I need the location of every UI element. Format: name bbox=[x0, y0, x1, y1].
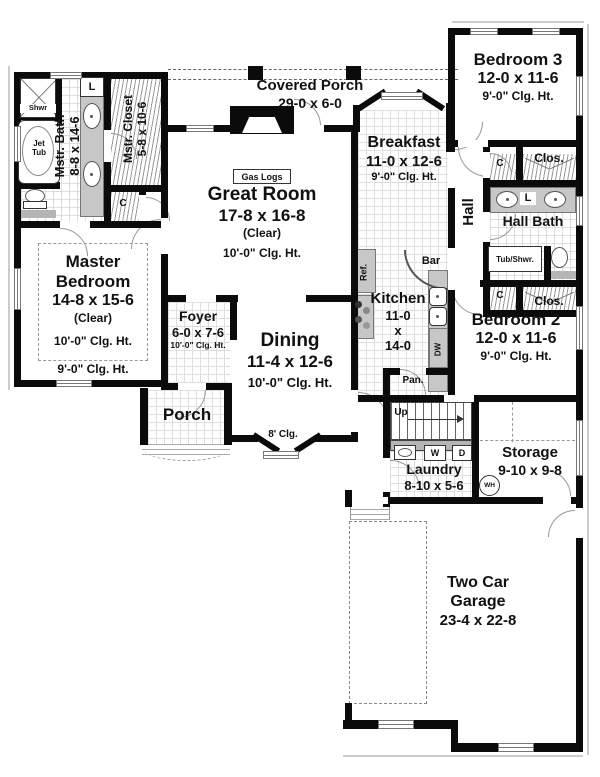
covered-porch-label: Covered Porch 29-0 x 6-0 bbox=[230, 77, 390, 111]
door-opening bbox=[444, 395, 474, 402]
room-dims: 11-0 x 12-6 bbox=[358, 153, 450, 171]
range-burner bbox=[355, 316, 362, 323]
wall-segment bbox=[448, 28, 583, 35]
dishwasher-label: DW bbox=[434, 335, 445, 365]
wall-segment bbox=[351, 125, 358, 302]
laundry-sink-basin bbox=[398, 448, 412, 457]
window bbox=[186, 125, 214, 132]
hall-bath-label: Hall Bath bbox=[490, 213, 576, 230]
window bbox=[14, 268, 21, 310]
wall-segment bbox=[544, 246, 551, 280]
great-room-label: Great Room 17-8 x 16-8 (Clear) 10'-0" Cl… bbox=[193, 184, 331, 260]
door-opening bbox=[60, 221, 90, 228]
tub-shower: Tub/Shwr. bbox=[488, 246, 542, 272]
window bbox=[576, 196, 583, 226]
foyer-label: Foyer 6-0 x 7-6 10'-0" Clg. Ht. bbox=[166, 308, 230, 350]
room-clg: 10'-0" Clg. Ht. bbox=[238, 375, 342, 390]
bedroom2-label: Bedroom 2 12-0 x 11-6 9'-0" Clg. Ht. bbox=[460, 310, 572, 363]
refrigerator-label: Ref. bbox=[359, 253, 372, 293]
wall-segment bbox=[388, 368, 400, 375]
room-name: Two Car Garage bbox=[418, 574, 538, 612]
wall-segment bbox=[140, 388, 148, 445]
washer: W bbox=[424, 445, 446, 461]
wall-segment bbox=[426, 368, 448, 375]
storage-label: Storage 9-10 x 9-8 bbox=[486, 444, 574, 478]
door-opening bbox=[178, 383, 206, 390]
room-name: Master Bedroom bbox=[40, 252, 146, 292]
window bbox=[576, 420, 583, 476]
sink-drain bbox=[436, 315, 439, 318]
room-dims: 12-0 x 11-6 bbox=[460, 330, 572, 349]
room-clg: 9'-0" Clg. Ht. bbox=[460, 349, 572, 363]
closet-label: Clos. bbox=[524, 151, 574, 165]
room-note: (Clear) bbox=[40, 311, 146, 325]
door-opening bbox=[294, 125, 324, 132]
breakfast-label: Breakfast 11-0 x 12-6 9'-0" Clg. Ht. bbox=[358, 134, 450, 184]
window bbox=[56, 380, 92, 387]
wall-segment bbox=[516, 147, 523, 180]
hall-label: Hall bbox=[460, 182, 476, 242]
closet-label: Clos. bbox=[524, 294, 574, 308]
room-name: Storage bbox=[486, 444, 574, 462]
wall-segment bbox=[230, 295, 237, 340]
jet-tub-label: Jet Tub bbox=[18, 139, 60, 158]
window bbox=[470, 28, 498, 35]
sink-drain bbox=[554, 198, 557, 201]
sink-drain bbox=[436, 295, 439, 298]
room-dims: 23-4 x 22-8 bbox=[418, 612, 538, 630]
laundry-label: Laundry 8-10 x 5-6 bbox=[394, 461, 474, 493]
garage-slab-line bbox=[349, 521, 427, 704]
room-name: Kitchen bbox=[366, 290, 430, 308]
wall-segment bbox=[168, 295, 186, 302]
room-dim-w: 11-0 bbox=[366, 308, 430, 323]
bar-label: Bar bbox=[414, 255, 448, 268]
room-dims: 9-10 x 9-8 bbox=[486, 462, 574, 479]
dining-label: Dining 11-4 x 12-6 10'-0" Clg. Ht. bbox=[238, 330, 342, 391]
pantry-label: Pan. bbox=[390, 375, 436, 387]
door-opening bbox=[452, 280, 480, 287]
c-closet-label: C bbox=[492, 158, 508, 170]
up-label: Up bbox=[391, 407, 411, 419]
eave-line-bottom bbox=[343, 755, 583, 757]
dryer: D bbox=[452, 445, 472, 461]
c-closet-label: C bbox=[115, 198, 131, 210]
room-dims: 8-10 x 5-6 bbox=[394, 478, 474, 493]
door-opening bbox=[483, 212, 490, 242]
sink-drain bbox=[506, 198, 509, 201]
room-dims: 5-8 x 10-6 bbox=[135, 77, 149, 181]
window bbox=[576, 76, 583, 116]
door-opening bbox=[543, 497, 571, 504]
sink-drain bbox=[90, 173, 93, 176]
room-name: Bedroom 3 bbox=[462, 50, 574, 70]
room-name: Dining bbox=[238, 330, 342, 352]
room-name: Foyer bbox=[166, 308, 230, 325]
kitchen-label: Kitchen 11-0 x 14-0 bbox=[366, 290, 430, 354]
storage-ceiling-line bbox=[512, 402, 514, 442]
eave-line-left bbox=[8, 66, 10, 390]
room-clg: 9'-0" Clg. Ht. bbox=[358, 171, 450, 184]
eave-line-top-right bbox=[452, 21, 584, 23]
eave-line-right bbox=[587, 24, 589, 755]
wall-segment bbox=[345, 490, 352, 507]
door-opening bbox=[383, 458, 390, 492]
window bbox=[498, 743, 534, 752]
wall-segment bbox=[224, 388, 232, 445]
stairs-arrow-head bbox=[457, 415, 464, 423]
garage-entry-steps bbox=[350, 505, 390, 520]
room-name: Great Room bbox=[193, 184, 331, 206]
laundry-sink bbox=[394, 445, 416, 460]
room-dims: 14-8 x 15-6 bbox=[40, 292, 146, 311]
jet-tub-word: Jet bbox=[18, 139, 60, 148]
room-name: Covered Porch bbox=[230, 77, 390, 95]
window bbox=[263, 451, 299, 459]
room-name: Bedroom 2 bbox=[460, 310, 572, 330]
window bbox=[378, 720, 414, 729]
room-name: Breakfast bbox=[358, 134, 450, 153]
door-opening bbox=[139, 195, 146, 221]
room-dims: 12-0 x 11-6 bbox=[462, 70, 574, 89]
door-opening bbox=[576, 508, 583, 538]
c-closet-label: C bbox=[492, 290, 508, 302]
door-opening bbox=[161, 218, 168, 254]
master-bedroom-outer-clg: 9'-0" Clg. Ht. bbox=[38, 362, 148, 376]
bedroom3-label: Bedroom 3 12-0 x 11-6 9'-0" Clg. Ht. bbox=[462, 50, 574, 103]
window bbox=[576, 306, 583, 350]
room-clg: 10'-0" Clg. Ht. bbox=[193, 246, 331, 260]
room-note: (Clear) bbox=[193, 226, 331, 240]
door-opening bbox=[351, 390, 358, 432]
porch-steps bbox=[142, 443, 230, 455]
room-dims: 6-0 x 7-6 bbox=[166, 325, 230, 340]
garage-label: Two Car Garage 23-4 x 22-8 bbox=[418, 574, 538, 629]
door-opening bbox=[352, 497, 388, 504]
door-opening bbox=[104, 130, 111, 162]
room-clg: 10'-0" Clg. Ht. bbox=[40, 334, 146, 348]
wall-segment bbox=[448, 28, 455, 147]
door-swing bbox=[548, 510, 575, 537]
wall-segment bbox=[483, 180, 576, 187]
room-dim-l: 14-0 bbox=[366, 338, 430, 353]
room-dims: 29-0 x 6-0 bbox=[230, 95, 390, 112]
sink-drain bbox=[90, 115, 93, 118]
door-opening bbox=[483, 152, 490, 178]
storage-ceiling-line bbox=[480, 440, 575, 442]
wall-segment bbox=[104, 185, 168, 192]
toilet bbox=[551, 247, 568, 268]
master-closet-label: Mstr. Closet 5-8 x 10-6 bbox=[121, 77, 151, 181]
range-burner bbox=[355, 301, 362, 308]
room-dims: 11-4 x 12-6 bbox=[238, 352, 342, 372]
room-clg: 10'-0" Clg. Ht. bbox=[166, 340, 230, 350]
door-opening bbox=[458, 140, 488, 147]
bath-partition bbox=[21, 210, 56, 218]
window bbox=[532, 28, 560, 35]
shower-label: Shwr bbox=[20, 104, 56, 113]
room-name: Laundry bbox=[394, 461, 474, 478]
gas-logs-label: Gas Logs bbox=[233, 169, 291, 184]
room-clg: 9'-0" Clg. Ht. bbox=[462, 89, 574, 103]
floor-plan: W D WH Covered Porch 29-0 x 6-0 Great Ro… bbox=[0, 0, 600, 777]
dining-bay-clg-label: 8' Clg. bbox=[255, 429, 311, 441]
window bbox=[50, 72, 82, 79]
wall-segment bbox=[576, 28, 583, 752]
jet-tub-word: Tub bbox=[18, 148, 60, 157]
room-dim-sep: x bbox=[366, 323, 430, 338]
room-dims: 17-8 x 16-8 bbox=[193, 206, 331, 226]
stairs-direction-line bbox=[408, 419, 458, 420]
toilet-tank bbox=[23, 201, 47, 209]
room-name: Mstr. Closet bbox=[121, 77, 135, 181]
room-dims: 8-8 x 14-6 bbox=[67, 91, 82, 201]
linen-label: L bbox=[520, 192, 536, 205]
master-bedroom-label: Master Bedroom 14-8 x 15-6 (Clear) 10'-0… bbox=[40, 252, 146, 348]
porch-label: Porch bbox=[160, 405, 214, 425]
